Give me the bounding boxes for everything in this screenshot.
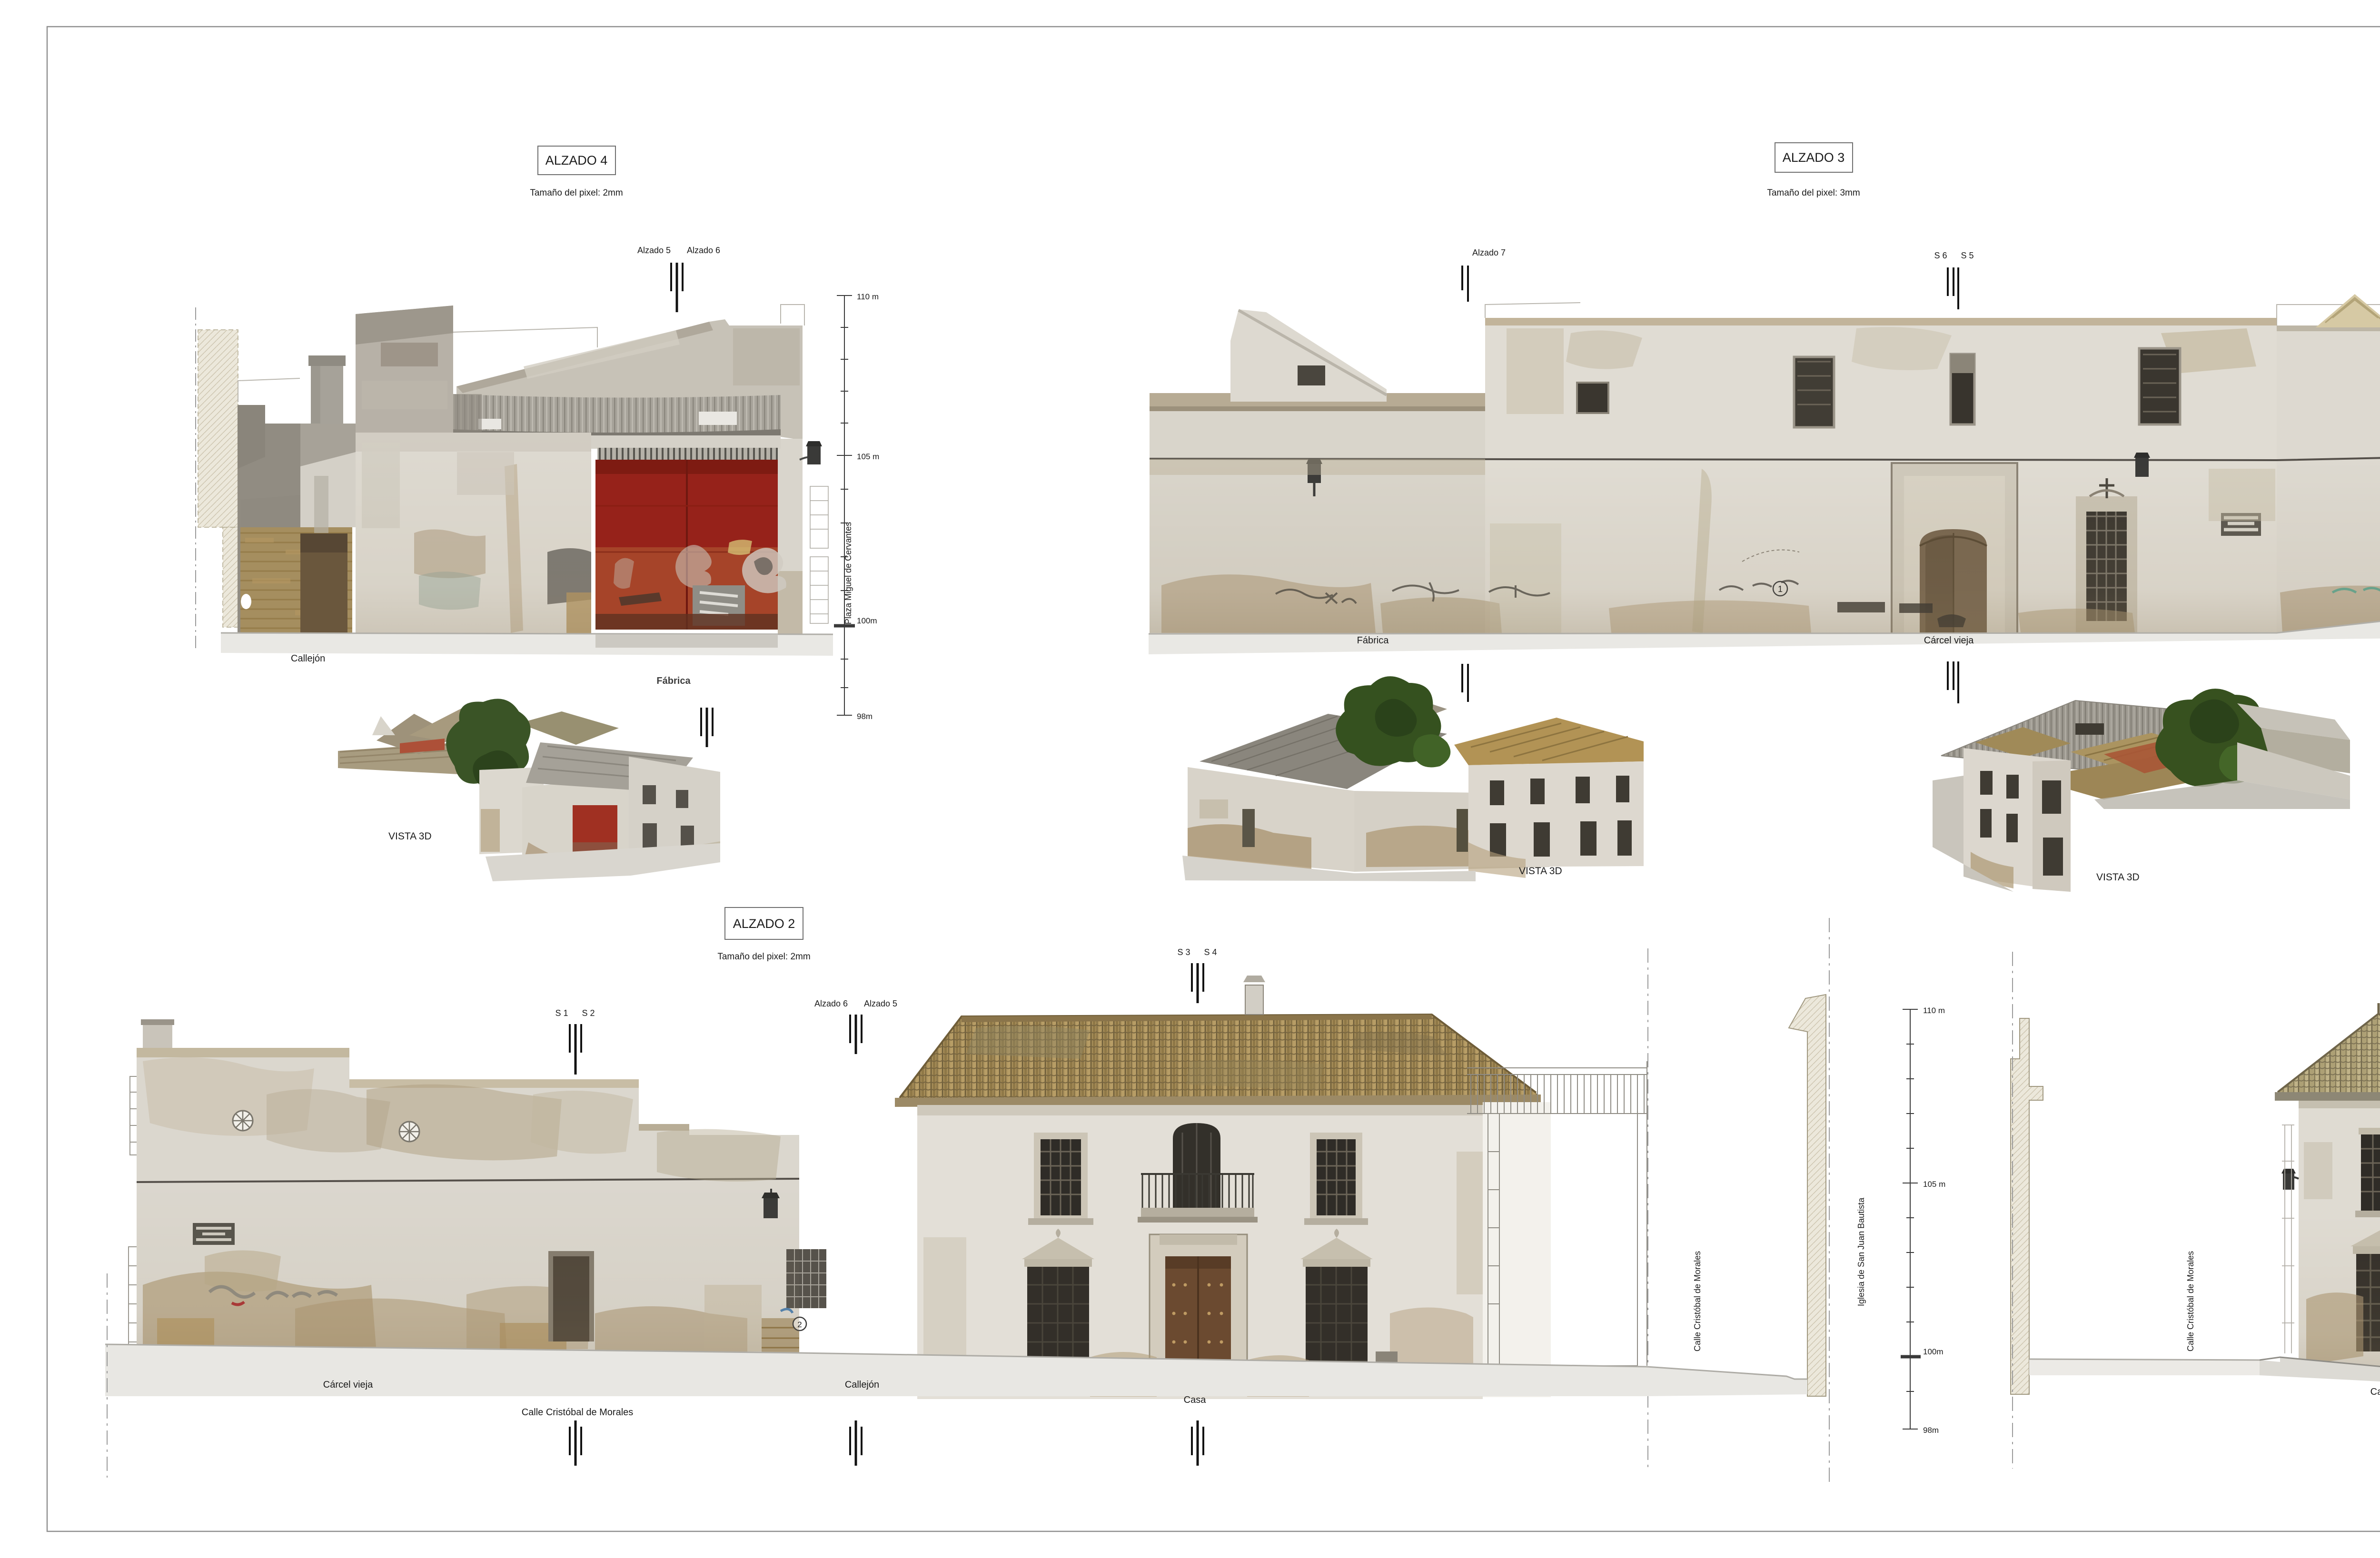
svg-text:S 4: S 4 <box>1204 947 1217 957</box>
svg-text:Alzado 6: Alzado 6 <box>814 999 848 1008</box>
svg-text:VISTA 3D: VISTA 3D <box>388 831 432 842</box>
svg-text:VISTA 3D: VISTA 3D <box>1519 866 1562 877</box>
svg-text:Alzado 7: Alzado 7 <box>1472 248 1506 257</box>
svg-text:105 m: 105 m <box>1923 1180 1945 1189</box>
svg-text:ALZADO 3: ALZADO 3 <box>1783 150 1845 165</box>
svg-text:Cárcel vieja: Cárcel vieja <box>323 1380 373 1390</box>
svg-text:Alzado 5: Alzado 5 <box>864 999 897 1008</box>
svg-text:Casa: Casa <box>2370 1387 2380 1397</box>
svg-text:Callejón: Callejón <box>845 1380 879 1390</box>
svg-text:Calle Cristóbal de Morales: Calle Cristóbal de Morales <box>1693 1251 1702 1351</box>
svg-text:Fábrica: Fábrica <box>656 676 691 686</box>
svg-text:S 1: S 1 <box>555 1008 568 1018</box>
svg-text:Alzado 6: Alzado 6 <box>687 246 720 255</box>
svg-text:Tamaño del pixel: 3mm: Tamaño del pixel: 3mm <box>1767 188 1860 198</box>
svg-text:VISTA 3D: VISTA 3D <box>2096 872 2140 883</box>
svg-text:Alzado 5: Alzado 5 <box>637 246 671 255</box>
svg-text:Callejón: Callejón <box>291 653 325 664</box>
svg-text:Fábrica: Fábrica <box>1357 635 1389 646</box>
svg-text:Cárcel vieja: Cárcel vieja <box>1924 635 1974 646</box>
svg-text:Tamaño del pixel: 2mm: Tamaño del pixel: 2mm <box>530 188 623 198</box>
svg-text:S 5: S 5 <box>1961 251 1973 260</box>
svg-text:110 m: 110 m <box>857 292 879 301</box>
svg-text:Calle Cristóbal de Morales: Calle Cristóbal de Morales <box>2186 1251 2195 1351</box>
svg-text:S 3: S 3 <box>1177 947 1190 957</box>
svg-text:105 m: 105 m <box>857 452 879 461</box>
svg-text:Casa: Casa <box>1184 1395 1207 1405</box>
svg-text:S 2: S 2 <box>582 1008 595 1018</box>
svg-text:Tamaño del pixel: 2mm: Tamaño del pixel: 2mm <box>717 952 810 962</box>
svg-text:100m: 100m <box>1923 1347 1944 1356</box>
svg-text:110 m: 110 m <box>1923 1006 1945 1015</box>
svg-text:100m: 100m <box>857 616 877 625</box>
svg-text:ALZADO 4: ALZADO 4 <box>545 153 608 168</box>
svg-text:98m: 98m <box>857 712 873 721</box>
svg-text:Calle Cristóbal de Morales: Calle Cristóbal de Morales <box>522 1407 634 1418</box>
svg-text:Iglesia de San Juan Bautista: Iglesia de San Juan Bautista <box>1856 1197 1866 1306</box>
svg-text:S 6: S 6 <box>1934 251 1947 260</box>
svg-text:98m: 98m <box>1923 1426 1939 1435</box>
svg-text:Plaza Miguel de Cervantes: Plaza Miguel de Cervantes <box>843 522 853 624</box>
svg-text:ALZADO 2: ALZADO 2 <box>733 917 795 931</box>
